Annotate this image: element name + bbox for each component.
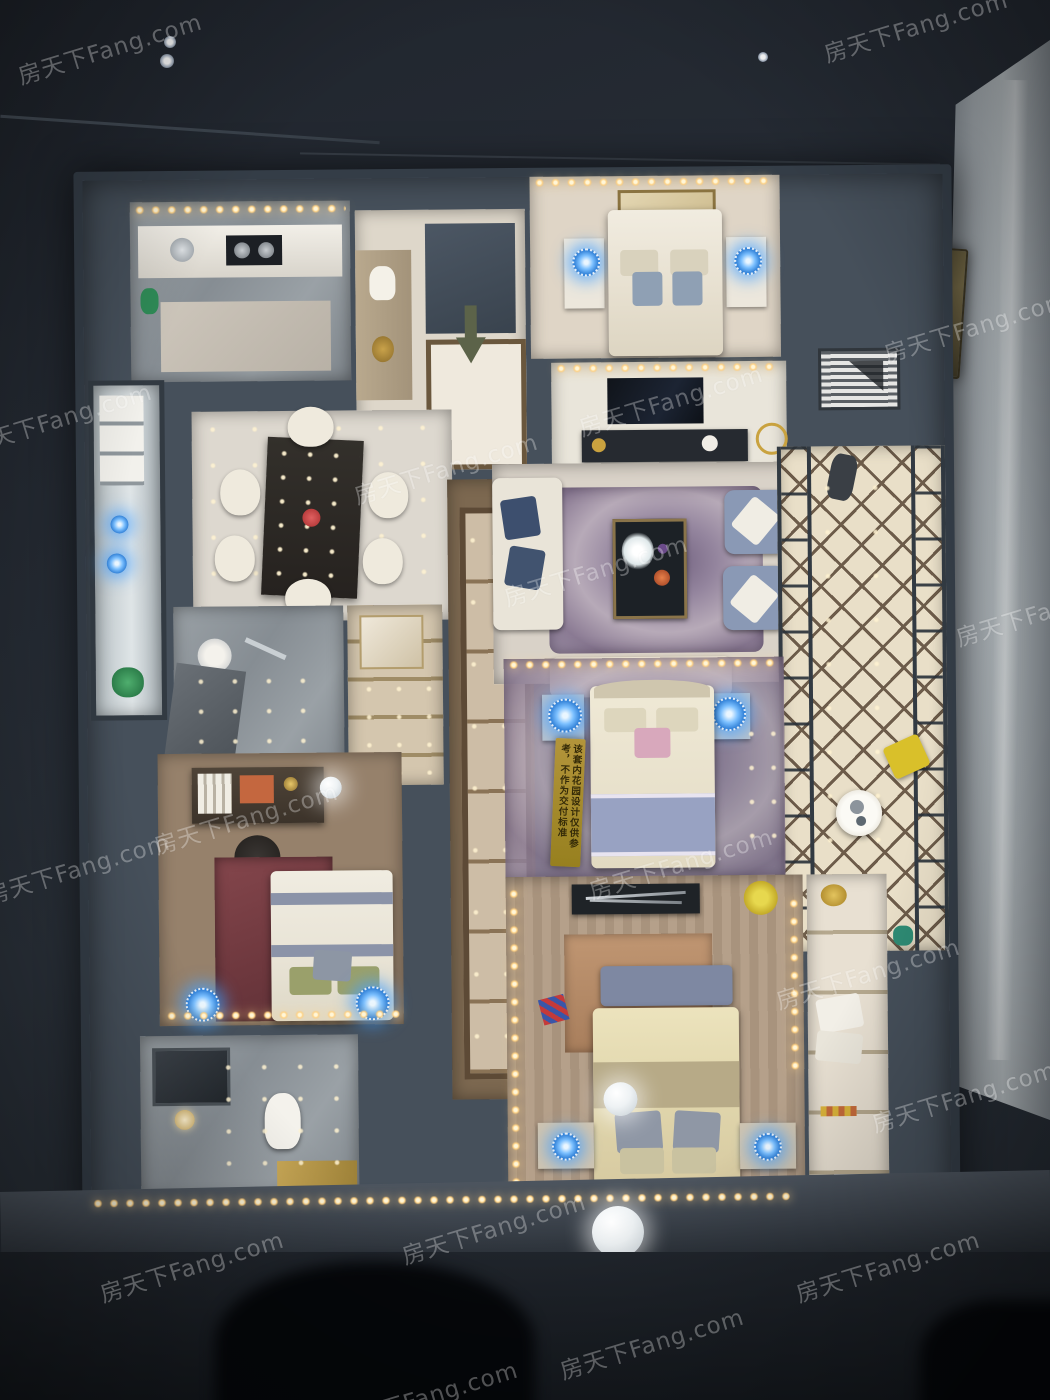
- headboard: [594, 679, 710, 698]
- entry-console: [355, 250, 412, 400]
- kitchen-island: [161, 301, 332, 372]
- watermark-text: 房天下Fang.com: [819, 0, 1011, 69]
- gold-decor: [592, 438, 606, 452]
- bedroom-top-led-strip: [531, 177, 775, 187]
- crystal-lamp-blue: [548, 698, 582, 732]
- dining-chair: [220, 469, 260, 515]
- tan-cushion: [620, 1148, 664, 1174]
- pot: [234, 242, 250, 258]
- armchair-blue: [723, 566, 786, 631]
- case-light-dot: [160, 54, 174, 68]
- white-flower-bouquet: [622, 532, 654, 570]
- bedroom-bottom-left: [157, 752, 403, 1026]
- white-pillow: [729, 573, 779, 624]
- bed-middle-bedroom: [590, 685, 716, 868]
- dining-chair: [287, 407, 333, 447]
- desk-clock: [284, 777, 298, 791]
- bed-top-bedroom: [608, 209, 723, 356]
- vanity-mirror: [152, 1048, 231, 1107]
- living-room: [492, 462, 794, 685]
- book-stack: [198, 773, 232, 813]
- green-plant: [112, 667, 144, 697]
- tv-console-dark: [572, 883, 700, 914]
- dining-chair: [368, 472, 408, 518]
- kitchen-led-strip: [132, 204, 346, 214]
- case-light-dot: [758, 52, 768, 62]
- led-dots-right-wall: [790, 895, 800, 1075]
- bedside-lamp-blue: [754, 1133, 782, 1161]
- gold-decor-item: [821, 884, 847, 906]
- dining-table: [261, 437, 364, 599]
- bed-bench-blue: [600, 965, 732, 1006]
- cooktop: [226, 235, 282, 265]
- kitchen-plant: [140, 288, 158, 314]
- bathroom-bottom-left: [140, 1034, 359, 1198]
- lavender-blanket-band: [591, 793, 716, 856]
- apartment-scale-model: 该套内花园设计仅供参考，不作为交付标准: [73, 164, 960, 1230]
- gray-cushion: [312, 949, 352, 981]
- cushion-blue: [672, 271, 702, 305]
- toilet: [264, 1093, 300, 1149]
- flower-decor: [372, 336, 394, 362]
- bedroom-top: [529, 175, 781, 359]
- stored-pillow: [815, 1030, 864, 1064]
- bedside-lamp-blue: [572, 248, 600, 276]
- crystal-lamp-blue: [712, 697, 746, 731]
- vanity-lamp: [175, 1110, 195, 1130]
- fruit-plate: [654, 570, 670, 586]
- closet-right: [807, 874, 890, 1202]
- decor-plate: [658, 544, 668, 554]
- dining-room: [191, 410, 453, 622]
- gray-band: [271, 892, 393, 905]
- balcony-window-right: [911, 445, 949, 950]
- dining-chair: [215, 535, 255, 581]
- case-light-dot: [164, 36, 176, 48]
- pink-cushion: [634, 728, 670, 758]
- cushion-blue: [632, 272, 662, 306]
- photo-of-apartment-model: 该套内花园设计仅供参考，不作为交付标准: [0, 0, 1050, 1400]
- bedside-lamp-blue: [734, 247, 762, 275]
- red-centerpiece-dish: [302, 508, 321, 527]
- white-vase: [702, 435, 718, 451]
- led-dots-left-wall: [510, 885, 521, 1185]
- white-sculpture: [369, 266, 395, 300]
- glass-shelf-edge-2: [300, 152, 940, 165]
- tv-screen: [607, 377, 703, 424]
- sofa-left: [492, 478, 563, 631]
- table-dish: [850, 800, 864, 814]
- desk-pad: [240, 775, 274, 803]
- pot: [258, 242, 274, 258]
- table-dish: [856, 816, 866, 826]
- gray-pillow: [673, 1110, 721, 1153]
- watermark-text: 房天下Fang.com: [13, 3, 205, 91]
- glass-shelf-edge: [0, 115, 379, 145]
- round-garden-table: [836, 790, 882, 836]
- white-pillow: [730, 495, 780, 546]
- ac-vent-grille: [818, 348, 901, 411]
- glass-glare-ball: [603, 1082, 637, 1116]
- navy-cushion: [504, 545, 546, 590]
- vent-shadow: [849, 361, 883, 391]
- blue-light-dot: [107, 553, 127, 573]
- media-console: [582, 429, 748, 462]
- silver-decor-stick: [590, 899, 682, 904]
- tan-cushion: [672, 1147, 716, 1173]
- garden-notice-sign: 该套内花园设计仅供参考，不作为交付标准: [550, 738, 585, 867]
- bedside-lamp-blue: [552, 1132, 580, 1160]
- kitchen-sink: [170, 238, 194, 262]
- entrance-arrow-head: [456, 337, 486, 363]
- white-ball-lamp: [320, 777, 342, 799]
- dining-chair: [363, 538, 403, 584]
- shower-glass-panel: [164, 663, 246, 767]
- yellow-flowers: [744, 881, 778, 915]
- balcony-lights: [803, 466, 919, 937]
- kitchen: [130, 200, 352, 382]
- blue-light-dot: [110, 515, 128, 533]
- glowing-sphere-on-edge: [592, 1206, 644, 1258]
- faucet-arm: [245, 637, 287, 660]
- wardrobe-cabinet: [359, 615, 423, 670]
- bedroom-bottom-center: [506, 875, 806, 1205]
- pencil-tray: [821, 1106, 857, 1116]
- tv-wall-led-strip: [553, 363, 781, 373]
- balcony-shelves: [99, 395, 144, 485]
- coffee-table: [612, 519, 687, 620]
- navy-cushion: [500, 496, 542, 541]
- green-plant-decor: [893, 926, 913, 946]
- entrance-arrow: [465, 305, 477, 339]
- left-balcony: [88, 380, 167, 721]
- stored-pillow: [815, 992, 864, 1033]
- bedroom-middle: [504, 657, 786, 879]
- garden-statue: [825, 452, 860, 502]
- study-desk: [192, 767, 324, 824]
